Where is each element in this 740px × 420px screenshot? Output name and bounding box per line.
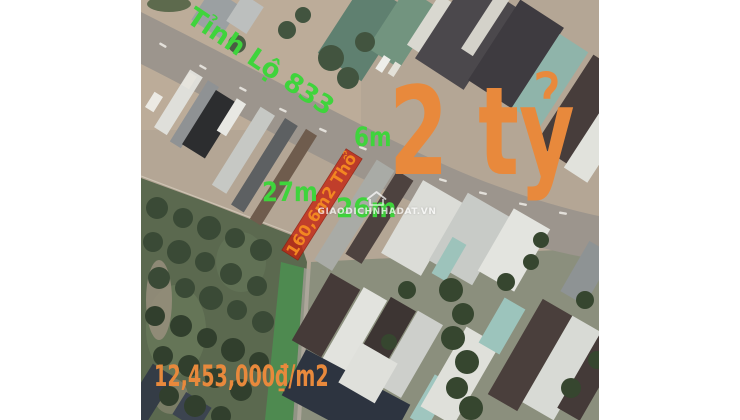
house-icon — [365, 191, 389, 206]
road-frontage-label: 6m — [354, 122, 392, 153]
watermark-text: GIAODICHNHADAT.VN — [318, 207, 437, 217]
watermark: GIAODICHNHADAT.VN — [318, 191, 437, 217]
listing-image: Tỉnh Lộ 833 6m 2 tỷ 27m 26m 160,6m2 Thổ … — [0, 0, 740, 420]
price-per-m2-label: 12,453,000₫/m2 — [154, 360, 329, 394]
price-label: 2 tỷ — [389, 62, 575, 204]
